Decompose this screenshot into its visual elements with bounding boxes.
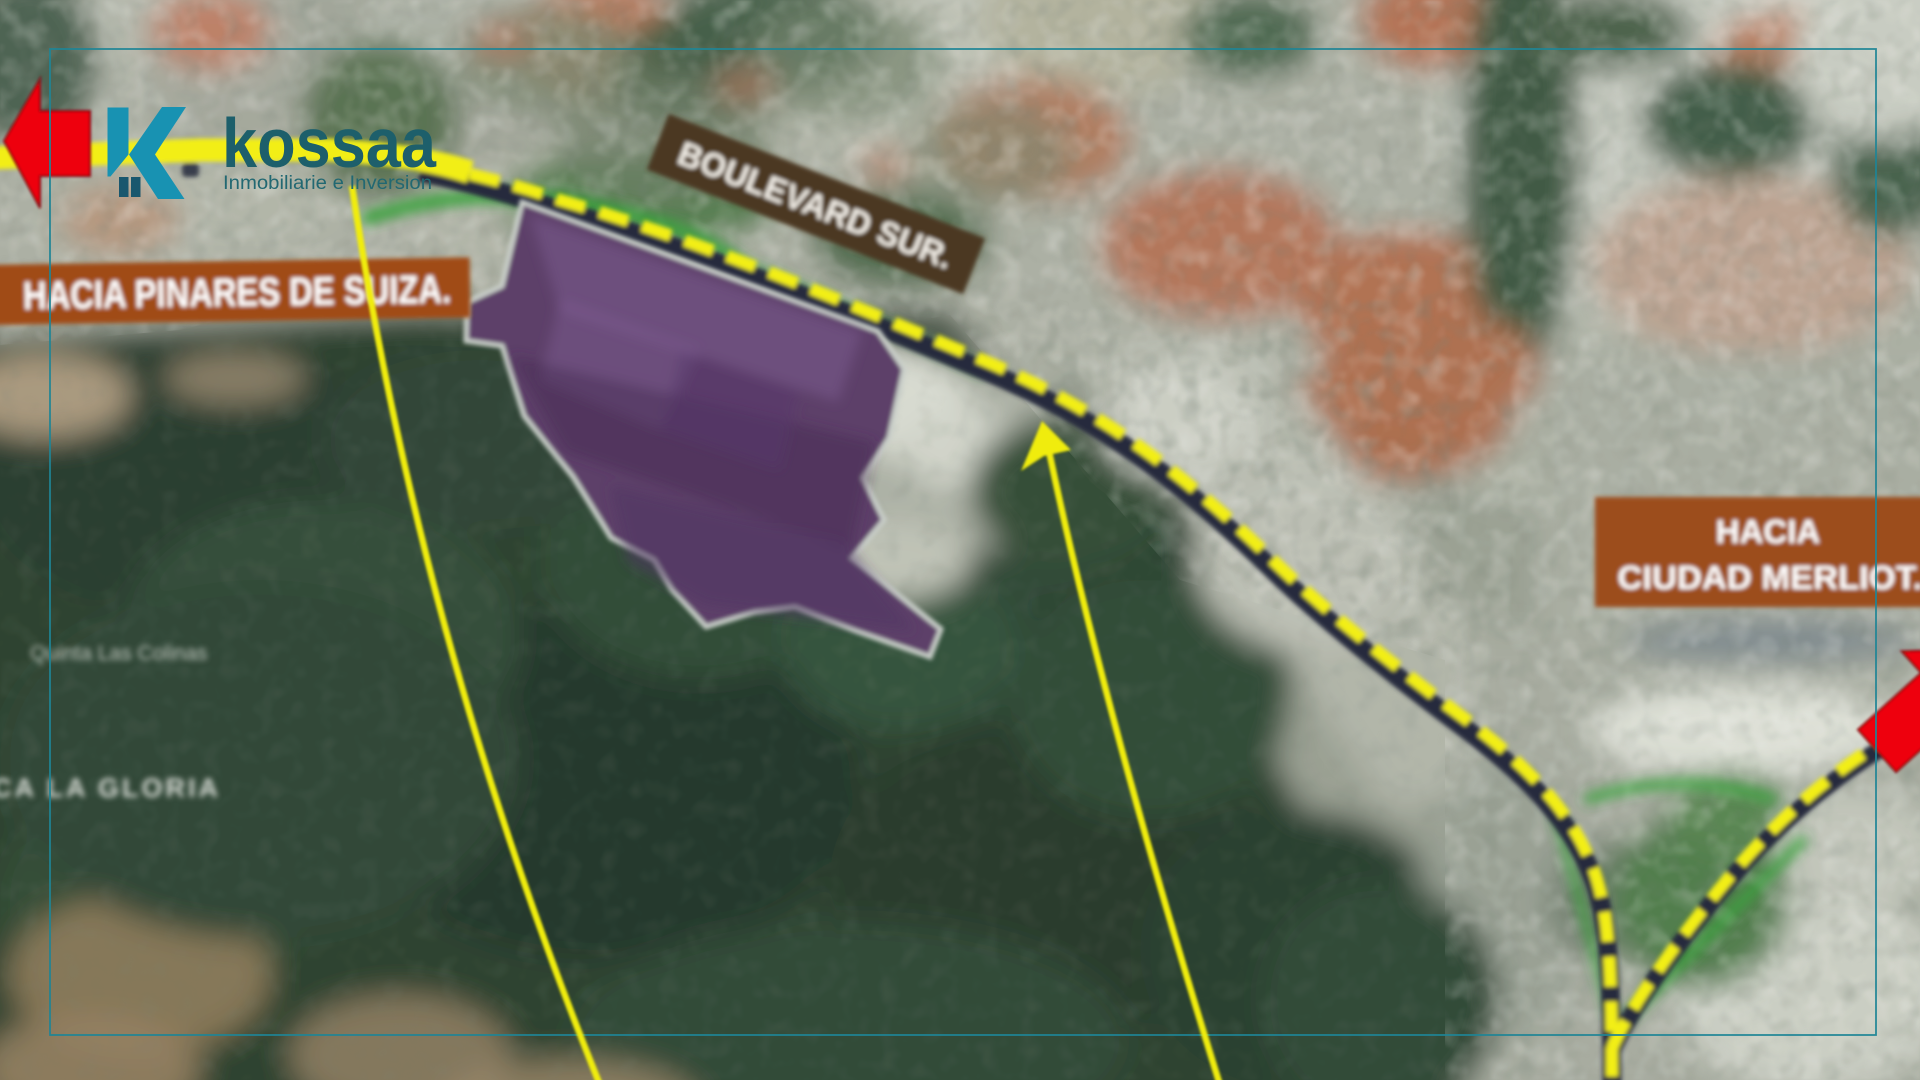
svg-text:Inmobiliarie e Inversion: Inmobiliarie e Inversion <box>223 173 432 194</box>
svg-text:CA LA GLORIA: CA LA GLORIA <box>0 773 221 803</box>
svg-text:HACIA: HACIA <box>1716 513 1821 550</box>
svg-text:kossaa: kossaa <box>222 104 437 182</box>
svg-text:CIUDAD MERLIOT.: CIUDAD MERLIOT. <box>1618 559 1920 596</box>
svg-text:HACIA PINARES DE SUIZA.: HACIA PINARES DE SUIZA. <box>23 268 452 319</box>
svg-text:Quinta Las Colinas: Quinta Las Colinas <box>30 642 207 665</box>
